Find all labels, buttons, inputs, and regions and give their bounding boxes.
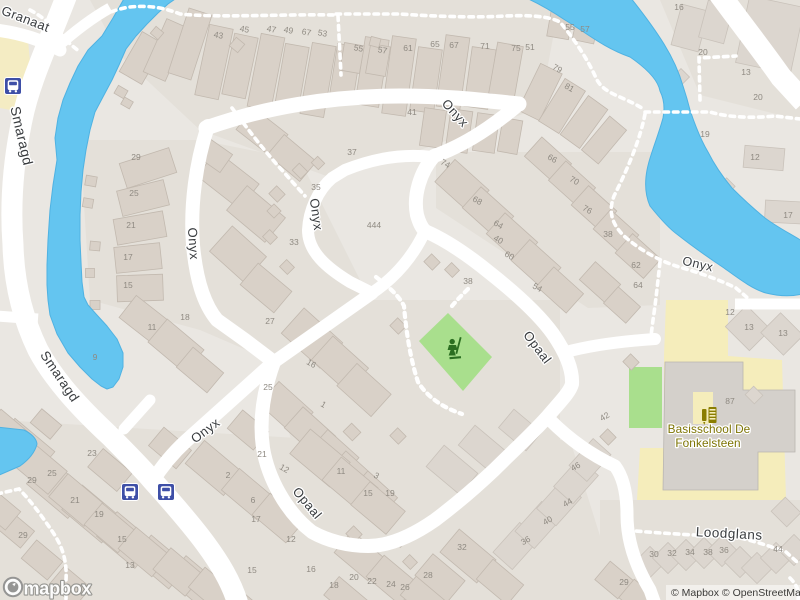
svg-text:38: 38 bbox=[603, 229, 613, 239]
svg-text:38: 38 bbox=[703, 547, 713, 557]
svg-text:33: 33 bbox=[289, 237, 299, 247]
svg-text:11: 11 bbox=[148, 322, 157, 332]
svg-text:41: 41 bbox=[407, 107, 417, 117]
svg-text:36: 36 bbox=[719, 545, 729, 555]
svg-text:25: 25 bbox=[47, 468, 57, 478]
svg-text:25: 25 bbox=[263, 382, 273, 392]
svg-text:12: 12 bbox=[750, 152, 760, 162]
svg-text:20: 20 bbox=[698, 47, 708, 57]
svg-text:57: 57 bbox=[377, 44, 388, 56]
svg-text:62: 62 bbox=[631, 260, 641, 270]
svg-text:13: 13 bbox=[778, 328, 788, 338]
svg-text:12: 12 bbox=[725, 307, 735, 317]
svg-text:29: 29 bbox=[619, 577, 629, 587]
svg-text:12: 12 bbox=[286, 534, 296, 544]
svg-text:21: 21 bbox=[70, 495, 80, 505]
svg-text:20: 20 bbox=[753, 92, 763, 102]
svg-text:Fonkelsteen: Fonkelsteen bbox=[675, 436, 740, 450]
svg-text:47: 47 bbox=[266, 23, 277, 35]
svg-text:28: 28 bbox=[423, 570, 433, 580]
svg-text:13: 13 bbox=[741, 67, 751, 77]
svg-text:34: 34 bbox=[685, 547, 695, 557]
svg-text:29: 29 bbox=[18, 530, 28, 540]
svg-text:44: 44 bbox=[773, 544, 783, 554]
svg-text:27: 27 bbox=[265, 316, 275, 326]
svg-text:49: 49 bbox=[283, 24, 294, 36]
svg-text:13: 13 bbox=[125, 560, 135, 570]
svg-text:51: 51 bbox=[525, 42, 535, 52]
svg-text:15: 15 bbox=[363, 488, 373, 498]
svg-text:mapbox: mapbox bbox=[24, 579, 92, 599]
svg-text:61: 61 bbox=[403, 43, 413, 53]
svg-text:18: 18 bbox=[180, 312, 190, 322]
svg-text:29: 29 bbox=[27, 475, 37, 485]
svg-text:87: 87 bbox=[725, 396, 735, 406]
svg-text:18: 18 bbox=[329, 580, 339, 590]
svg-text:38: 38 bbox=[463, 276, 473, 286]
svg-text:9: 9 bbox=[93, 352, 98, 362]
svg-text:Basisschool De: Basisschool De bbox=[668, 422, 751, 436]
svg-text:55: 55 bbox=[353, 42, 364, 54]
svg-text:32: 32 bbox=[667, 548, 677, 558]
svg-text:26: 26 bbox=[400, 582, 410, 592]
svg-text:11: 11 bbox=[337, 466, 346, 476]
svg-text:2: 2 bbox=[226, 470, 231, 480]
svg-text:71: 71 bbox=[480, 41, 490, 51]
svg-text:20: 20 bbox=[349, 572, 359, 582]
svg-text:17: 17 bbox=[783, 210, 793, 220]
svg-text:43: 43 bbox=[213, 29, 224, 41]
svg-text:19: 19 bbox=[94, 509, 104, 519]
svg-text:29: 29 bbox=[131, 152, 141, 162]
svg-text:67: 67 bbox=[449, 40, 459, 50]
svg-text:30: 30 bbox=[649, 549, 659, 559]
svg-text:15: 15 bbox=[123, 280, 133, 290]
svg-text:19: 19 bbox=[385, 488, 395, 498]
svg-text:24: 24 bbox=[386, 579, 396, 589]
svg-text:25: 25 bbox=[129, 188, 139, 198]
svg-text:67: 67 bbox=[301, 26, 312, 38]
svg-text:13: 13 bbox=[744, 322, 754, 332]
svg-text:15: 15 bbox=[117, 534, 127, 544]
svg-text:35: 35 bbox=[311, 182, 321, 192]
svg-text:16: 16 bbox=[674, 2, 684, 12]
svg-text:21: 21 bbox=[257, 449, 267, 459]
svg-text:55: 55 bbox=[565, 22, 575, 32]
svg-text:75: 75 bbox=[511, 43, 521, 53]
svg-text:32: 32 bbox=[457, 542, 467, 552]
svg-text:37: 37 bbox=[347, 147, 357, 157]
svg-text:53: 53 bbox=[317, 27, 328, 39]
svg-text:16: 16 bbox=[306, 564, 316, 574]
svg-text:45: 45 bbox=[239, 23, 250, 35]
svg-text:Onyx: Onyx bbox=[185, 227, 202, 260]
svg-text:23: 23 bbox=[87, 448, 97, 458]
svg-text:15: 15 bbox=[247, 565, 257, 575]
svg-text:65: 65 bbox=[430, 39, 440, 49]
svg-text:64: 64 bbox=[633, 280, 643, 290]
svg-text:19: 19 bbox=[700, 129, 710, 139]
svg-text:22: 22 bbox=[367, 576, 377, 586]
svg-text:6: 6 bbox=[251, 495, 256, 505]
svg-text:444: 444 bbox=[367, 220, 381, 230]
svg-text:17: 17 bbox=[123, 252, 133, 262]
svg-text:17: 17 bbox=[251, 514, 261, 524]
svg-text:© Mapbox © OpenStreetMap: © Mapbox © OpenStreetMap bbox=[671, 587, 800, 599]
svg-text:57: 57 bbox=[580, 24, 590, 34]
svg-text:21: 21 bbox=[126, 220, 136, 230]
